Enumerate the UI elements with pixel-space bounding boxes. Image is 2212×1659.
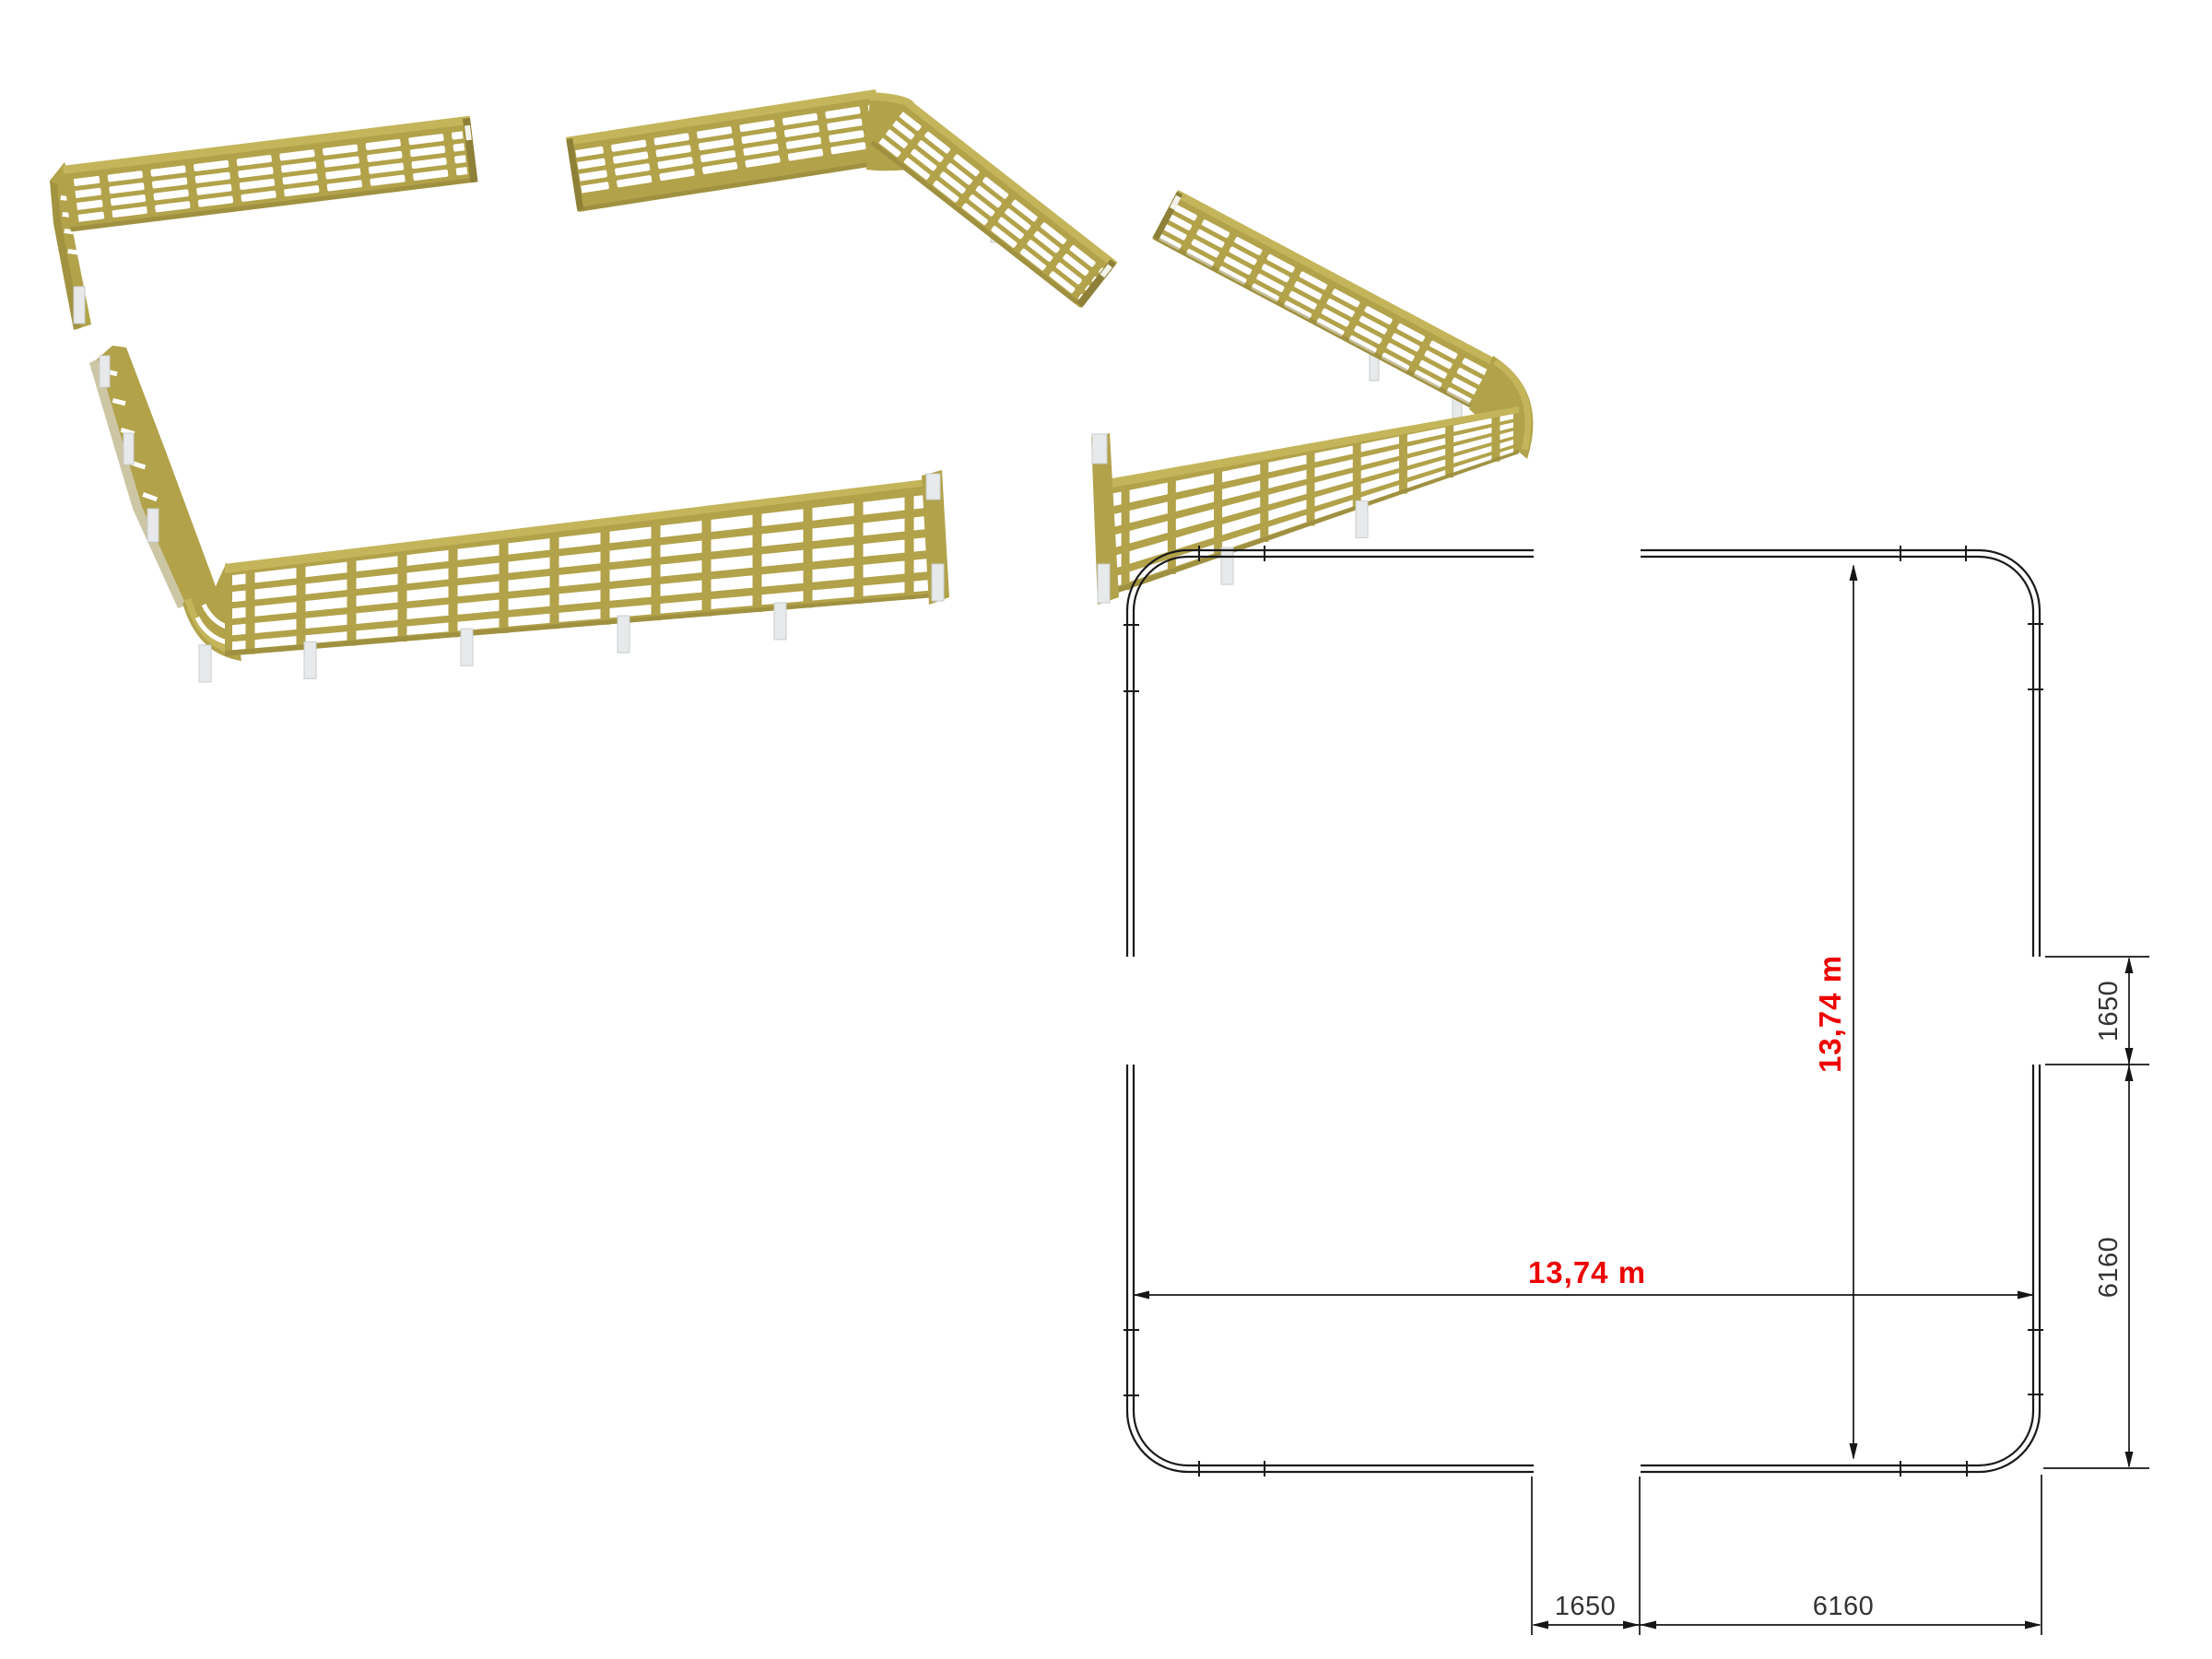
fence-post [500, 536, 509, 633]
right-side-dimension-label: 6160 [2094, 1237, 2124, 1299]
fence-post [1214, 465, 1222, 558]
arrowhead [2018, 1291, 2034, 1300]
fence-piece-front-left [89, 346, 949, 682]
post-foot [461, 629, 473, 665]
fence-post [347, 555, 357, 646]
post-foot [124, 433, 134, 465]
post-foot [304, 641, 316, 678]
fence-band-right-upper [871, 98, 1118, 309]
plan-outline-outer [1127, 550, 2040, 1472]
panel-joint-ticks [1124, 546, 2043, 1477]
post-foot [147, 509, 159, 542]
fence-post [601, 524, 610, 625]
plan-gaps [1120, 543, 2047, 1481]
fence-piece-back-right [566, 89, 1118, 309]
arrowhead [2125, 1048, 2134, 1065]
fence-post [398, 548, 407, 641]
plan-width-dimension-label: 13,74 m [1528, 1255, 1646, 1289]
post-foot [74, 287, 85, 324]
fence-post [1260, 457, 1268, 542]
arrowhead [2025, 1621, 2041, 1630]
fence-post [804, 500, 813, 607]
fence-band-back-right [566, 89, 888, 212]
arrowhead [1532, 1621, 1548, 1630]
post-foot [1356, 500, 1368, 537]
fence-piece-front-right [1091, 190, 1533, 605]
fence-band-back-left [63, 116, 477, 232]
arrowhead [2125, 1452, 2134, 1468]
fence-post [1445, 422, 1453, 477]
fence-post [1399, 431, 1407, 494]
fence-post [652, 519, 661, 621]
technical-drawing-canvas: 13,74 m 13,74 m 1650 6160 1650 6160 [0, 0, 2212, 1659]
fence-post [905, 488, 914, 599]
post-cap [1092, 434, 1107, 464]
fence-post [1353, 440, 1361, 510]
fence-3d-render [50, 89, 1533, 682]
post-cap [926, 474, 940, 500]
arrowhead [1133, 1291, 1149, 1300]
fence-post [1122, 483, 1130, 590]
plan-view: 13,74 m 13,74 m 1650 6160 1650 6160 [1120, 543, 2149, 1635]
post-foot [932, 564, 944, 601]
post-foot [1098, 564, 1110, 603]
plan-outline-inner [1134, 557, 2033, 1465]
fence-post [297, 560, 306, 650]
plan-height-dimension-label: 13,74 m [1813, 955, 1847, 1073]
post-foot [1221, 547, 1233, 584]
right-gap-dimension-label: 1650 [2094, 981, 2124, 1042]
bottom-side-dimension-label: 6160 [1813, 1592, 1875, 1621]
post-foot [618, 616, 629, 653]
bottom-gap-dimension-label: 1650 [1555, 1592, 1617, 1621]
post-foot [774, 603, 786, 640]
fence-wall-edge [98, 346, 219, 606]
fence-post [854, 495, 864, 604]
fence-post [702, 512, 712, 616]
post-foot [1370, 355, 1379, 381]
arrowhead [1850, 564, 1858, 581]
fence-post [550, 531, 559, 629]
fence-post [753, 507, 762, 612]
arrowhead [2125, 1065, 2134, 1081]
arrowhead [1850, 1443, 1858, 1460]
arrowhead [1623, 1621, 1640, 1630]
arrowhead [2125, 957, 2134, 973]
fence-post [246, 567, 255, 654]
post-foot [100, 356, 110, 387]
post-foot [199, 645, 211, 682]
fence-post [449, 543, 458, 638]
fence-post [1307, 448, 1315, 525]
fence-piece-back-left [50, 116, 477, 330]
arrowhead [1640, 1621, 1656, 1630]
fence-band-right-lower [1152, 190, 1499, 409]
fence-post [1491, 414, 1500, 462]
